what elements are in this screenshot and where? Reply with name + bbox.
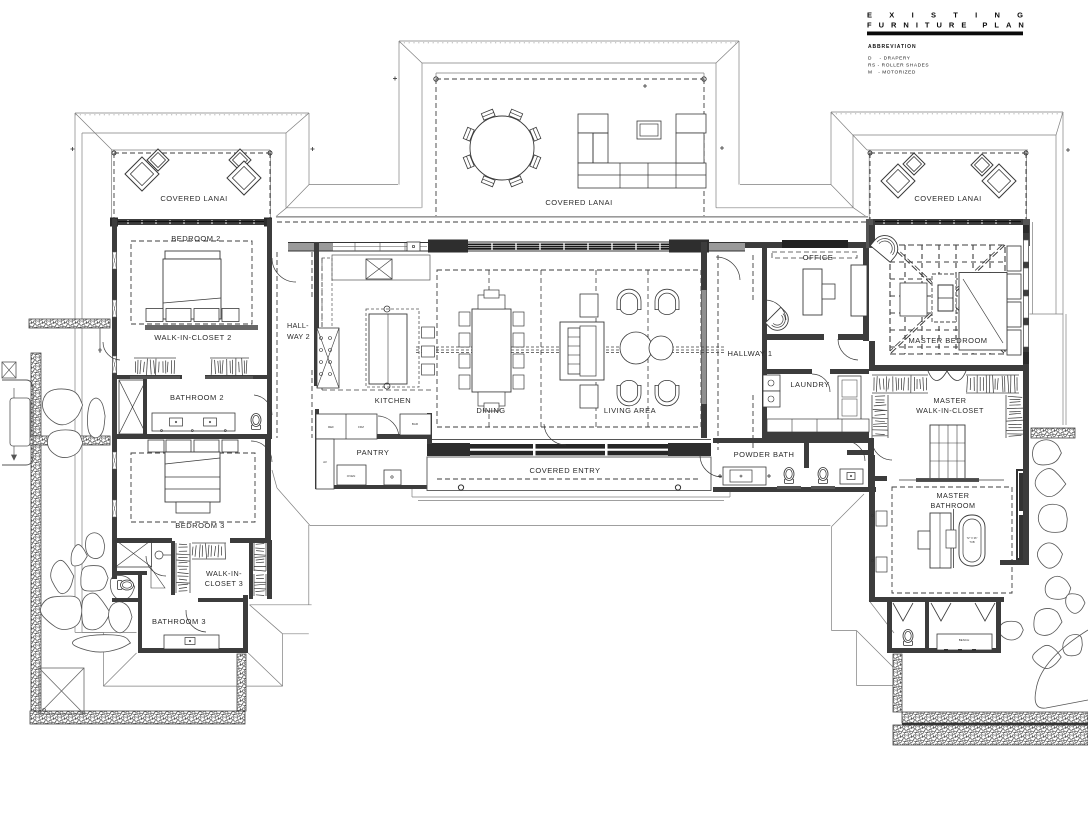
svg-text:MASTER: MASTER: [934, 396, 967, 405]
svg-text:WALK-IN-CLOSET 2: WALK-IN-CLOSET 2: [154, 333, 232, 342]
svg-text:WAY 2: WAY 2: [287, 332, 310, 341]
svg-text:D - DRAPERY: D - DRAPERY: [868, 56, 911, 62]
svg-text:HALL-: HALL-: [287, 321, 309, 330]
svg-text:OFFICE: OFFICE: [803, 253, 834, 262]
svg-text:72" X 36": 72" X 36": [967, 536, 978, 540]
svg-text:PANTRY: PANTRY: [357, 448, 390, 457]
svg-text:M - MOTORIZED: M - MOTORIZED: [868, 70, 916, 76]
svg-text:COVERED LANAI: COVERED LANAI: [545, 198, 612, 207]
svg-text:MASTER BEDROOM: MASTER BEDROOM: [908, 336, 987, 345]
svg-text:MASTER: MASTER: [937, 491, 970, 500]
svg-text:OVEN: OVEN: [347, 474, 356, 478]
svg-text:BEDROOM 2: BEDROOM 2: [171, 234, 221, 243]
svg-text:ABBREVIATION: ABBREVIATION: [868, 44, 917, 50]
svg-text:KITCHEN: KITCHEN: [375, 396, 411, 405]
svg-text:BATHROOM: BATHROOM: [931, 501, 976, 510]
svg-text:WALK-IN-: WALK-IN-: [206, 569, 242, 578]
svg-text:BEDROOM 3: BEDROOM 3: [175, 521, 225, 530]
svg-text:AV: AV: [323, 460, 327, 464]
svg-text:DINING: DINING: [476, 406, 505, 415]
svg-text:HALLWAY 1: HALLWAY 1: [727, 349, 772, 358]
svg-text:TUB: TUB: [969, 540, 974, 544]
svg-text:POWDER BATH: POWDER BATH: [734, 450, 795, 459]
svg-text:FURNITURE PLAN: FURNITURE PLAN: [867, 21, 1031, 30]
svg-text:COVERED LANAI: COVERED LANAI: [160, 194, 227, 203]
svg-text:COVERED LANAI: COVERED LANAI: [914, 194, 981, 203]
svg-text:CLOSET 3: CLOSET 3: [205, 579, 244, 588]
svg-text:E X I S T I N G: E X I S T I N G: [867, 11, 1031, 20]
svg-text:BATHROOM 2: BATHROOM 2: [170, 393, 224, 402]
svg-text:LIVING AREA: LIVING AREA: [604, 406, 656, 415]
svg-text:RS - ROLLER SHADES: RS - ROLLER SHADES: [868, 63, 929, 69]
svg-text:LAUNDRY: LAUNDRY: [790, 380, 829, 389]
svg-text:BENCH: BENCH: [959, 638, 970, 642]
svg-text:BATHROOM 3: BATHROOM 3: [152, 617, 206, 626]
svg-text:REF: REF: [328, 425, 334, 429]
svg-text:FRZ: FRZ: [358, 425, 364, 429]
svg-text:COVERED ENTRY: COVERED ENTRY: [530, 466, 601, 475]
svg-text:BAR: BAR: [412, 422, 419, 426]
svg-text:WALK-IN-CLOSET: WALK-IN-CLOSET: [916, 406, 984, 415]
